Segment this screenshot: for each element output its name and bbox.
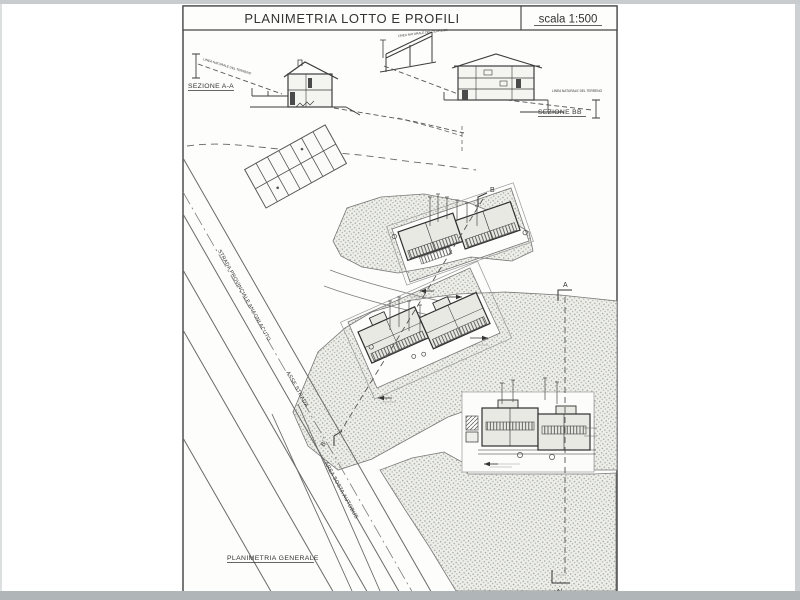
site-plan-drawing: PLANIMETRIA LOTTO E PROFILI scala 1:500 … xyxy=(0,0,800,600)
scanned-drawing-page: PLANIMETRIA LOTTO E PROFILI scala 1:500 … xyxy=(0,0,800,600)
section-bb-label: SEZIONE BB xyxy=(538,109,582,116)
scan-edge-bottom xyxy=(0,591,800,600)
sheet-title: PLANIMETRIA LOTTO E PROFILI xyxy=(244,11,459,26)
scan-edge-right xyxy=(795,4,800,591)
title-block: PLANIMETRIA LOTTO E PROFILI scala 1:500 xyxy=(183,6,617,30)
scale-label: scala 1:500 xyxy=(539,14,598,26)
marker-a-top: A xyxy=(563,282,568,289)
building-cluster-bottom xyxy=(462,392,596,472)
plan-caption: PLANIMETRIA GENERALE xyxy=(227,555,319,562)
scan-edge-left xyxy=(0,4,2,591)
marker-b-top: B xyxy=(490,187,495,194)
section-aa-label: SEZIONE A-A xyxy=(188,83,234,90)
scan-edge-top xyxy=(0,0,800,4)
terrain-note-bb-right: LINEA NATURALE DEL TERRENO xyxy=(552,89,603,93)
